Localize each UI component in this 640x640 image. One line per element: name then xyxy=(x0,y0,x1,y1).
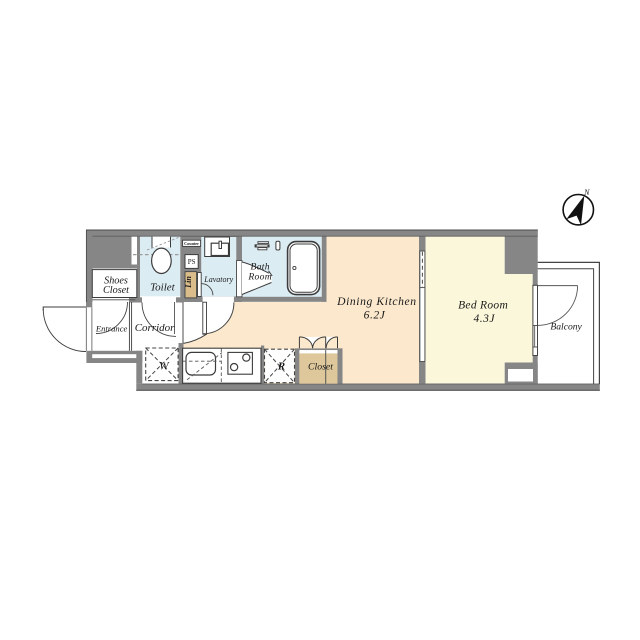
svg-text:Closet: Closet xyxy=(103,285,130,296)
svg-text:Corridor: Corridor xyxy=(135,322,175,334)
svg-text:N: N xyxy=(583,188,590,197)
svg-text:4.3J: 4.3J xyxy=(473,313,495,325)
svg-text:R: R xyxy=(277,360,285,372)
svg-text:Room: Room xyxy=(247,272,272,283)
svg-text:Balcony: Balcony xyxy=(550,322,582,333)
svg-text:Closet: Closet xyxy=(308,362,333,373)
svg-text:Bed Room: Bed Room xyxy=(458,300,508,312)
svg-text:Entrance: Entrance xyxy=(95,323,128,333)
svg-text:Counter: Counter xyxy=(184,241,199,246)
svg-text:PS: PS xyxy=(188,258,196,266)
svg-text:6.2J: 6.2J xyxy=(364,308,386,321)
svg-text:W: W xyxy=(159,360,170,372)
svg-text:Lin: Lin xyxy=(184,276,193,289)
svg-text:Lavatory: Lavatory xyxy=(203,275,233,284)
svg-text:Toilet: Toilet xyxy=(150,282,176,294)
svg-text:Dining Kitchen: Dining Kitchen xyxy=(336,295,417,308)
